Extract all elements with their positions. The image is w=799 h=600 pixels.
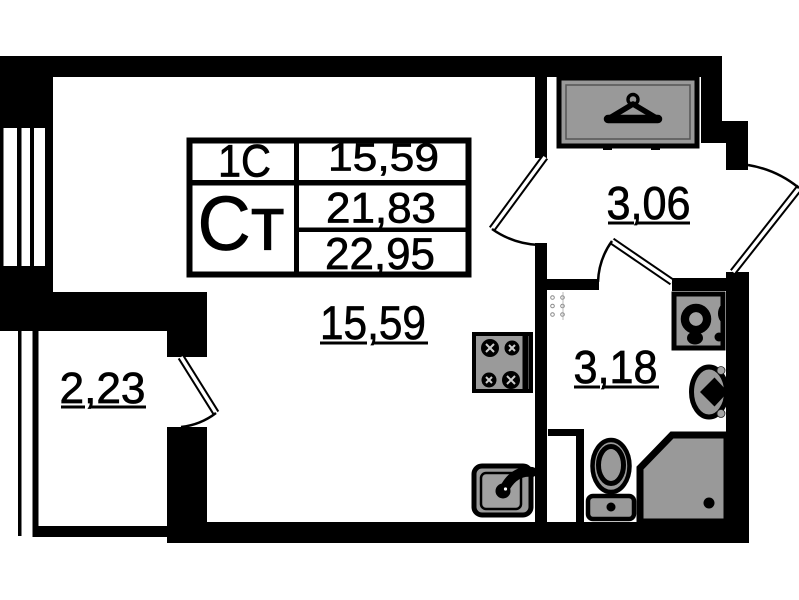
svg-text:Ст: Ст: [198, 181, 285, 267]
svg-text:3,06: 3,06: [607, 177, 691, 229]
svg-text:3,18: 3,18: [574, 341, 658, 393]
svg-text:21,83: 21,83: [326, 185, 436, 233]
svg-text:22,95: 22,95: [325, 230, 435, 279]
svg-text:1С: 1С: [218, 135, 271, 186]
svg-text:15,59: 15,59: [328, 137, 439, 180]
